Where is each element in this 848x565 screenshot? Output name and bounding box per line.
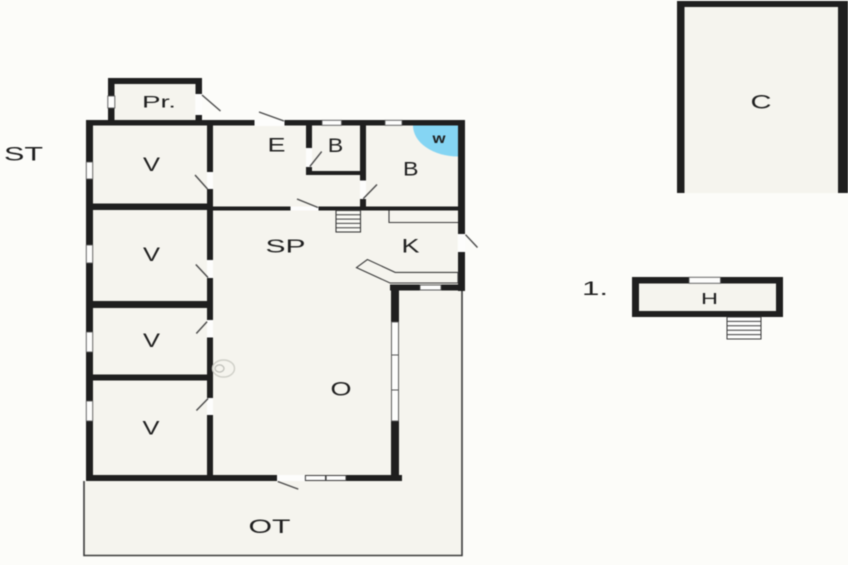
svg-text:1.: 1. bbox=[582, 278, 608, 300]
svg-text:V: V bbox=[143, 245, 160, 266]
svg-text:V: V bbox=[143, 155, 160, 176]
svg-text:OT: OT bbox=[249, 516, 291, 538]
svg-text:ST: ST bbox=[4, 144, 43, 166]
svg-text:V: V bbox=[143, 419, 160, 440]
svg-text:Pr.: Pr. bbox=[142, 93, 176, 112]
svg-text:E: E bbox=[268, 136, 286, 157]
svg-text:H: H bbox=[701, 291, 718, 308]
svg-text:C: C bbox=[751, 93, 772, 114]
svg-text:w: w bbox=[431, 130, 445, 146]
svg-text:O: O bbox=[331, 379, 352, 401]
svg-text:SP: SP bbox=[266, 236, 306, 257]
svg-text:B: B bbox=[328, 136, 344, 157]
svg-text:K: K bbox=[402, 237, 420, 258]
svg-text:V: V bbox=[143, 331, 160, 352]
svg-text:B: B bbox=[403, 160, 419, 181]
